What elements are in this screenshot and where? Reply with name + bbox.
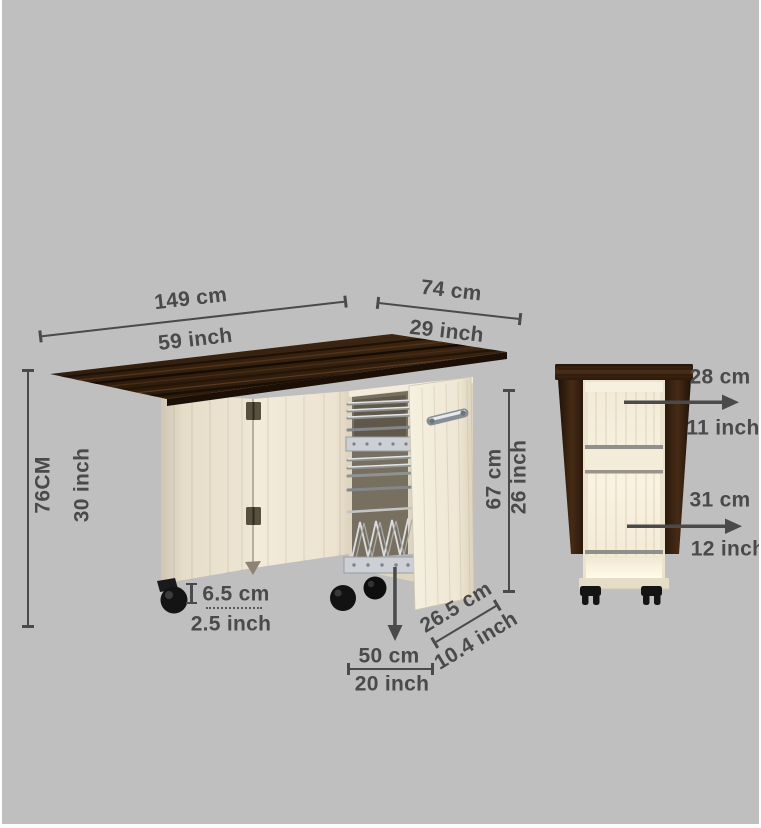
dim-depth-cm-label: 74 cm [420, 277, 483, 305]
trolley-door-panel [409, 377, 474, 610]
folded-leaf-left [558, 380, 583, 554]
dim-trolley-height-cm-label: 67 cm [484, 448, 505, 509]
folded-tabletop-edge [555, 364, 693, 380]
dim-caster-inch-label: 2.5 inch [191, 614, 272, 635]
dim-upper-shelf-inch-label: 11 inch [686, 418, 759, 439]
dim-lower-shelf-cm-label: 31 cm [689, 490, 750, 511]
dim-height-inch-label: 30 inch [72, 448, 93, 522]
caster-wheel [641, 586, 662, 605]
cabinet-shelf [585, 550, 663, 554]
cabinet-shelf [585, 445, 663, 449]
caster-wheel [580, 586, 601, 605]
folded-cabinet-render [555, 364, 693, 605]
slide-rail [344, 557, 416, 573]
slide-rail [346, 437, 414, 451]
dim-caster-line [186, 583, 197, 604]
caster-wheel [330, 585, 356, 611]
dim-caster-cm-label: 6.5 cm [202, 584, 269, 605]
open-table-render [50, 334, 542, 614]
dim-caster-dotted-line [206, 607, 262, 609]
hinge-icon [246, 507, 261, 525]
dim-trolley-depth-inch-label: 20 inch [355, 674, 429, 695]
caster-wheel [364, 577, 387, 600]
dim-upper-shelf-cm-label: 28 cm [689, 367, 750, 388]
dimension-diagram: 149 cm 59 inch 74 cm 29 inch 76CM 30 inc… [0, 0, 761, 828]
gate-leg-base [161, 391, 349, 584]
furniture-illustration [2, 0, 761, 828]
dim-trolley-height-inch-label: 26 inch [509, 440, 530, 514]
caster-wheel [157, 578, 188, 614]
hinge-icon [246, 402, 261, 420]
dim-height-cm-label: 76CM [33, 456, 54, 513]
dim-lower-shelf-inch-label: 12 inch [691, 539, 761, 560]
